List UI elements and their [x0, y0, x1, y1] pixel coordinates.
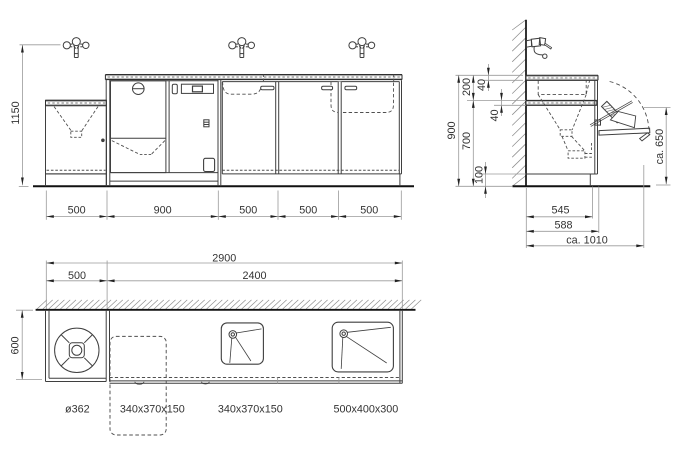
svg-text:588: 588	[554, 219, 572, 231]
svg-text:ca. 1010: ca. 1010	[566, 234, 607, 246]
svg-text:545: 545	[551, 204, 569, 216]
svg-text:2900: 2900	[212, 252, 236, 264]
svg-text:600: 600	[10, 336, 22, 354]
svg-text:500: 500	[299, 205, 317, 217]
svg-text:500: 500	[68, 205, 86, 217]
svg-text:900: 900	[154, 205, 172, 217]
svg-text:900: 900	[446, 121, 458, 139]
svg-text:340x370x150: 340x370x150	[120, 403, 185, 415]
svg-text:500: 500	[239, 205, 257, 217]
svg-text:500: 500	[360, 205, 378, 217]
svg-text:2400: 2400	[242, 270, 266, 282]
svg-text:1150: 1150	[10, 101, 22, 124]
svg-text:500: 500	[68, 270, 86, 282]
svg-text:40: 40	[476, 79, 488, 91]
svg-text:ø362: ø362	[65, 403, 90, 415]
svg-text:340x370x150: 340x370x150	[218, 403, 283, 415]
svg-text:ca. 650: ca. 650	[654, 129, 666, 164]
svg-text:40: 40	[489, 109, 501, 121]
svg-text:700: 700	[461, 132, 473, 150]
svg-text:500x400x300: 500x400x300	[333, 403, 398, 415]
svg-text:100: 100	[474, 166, 486, 184]
svg-text:200: 200	[461, 78, 473, 96]
